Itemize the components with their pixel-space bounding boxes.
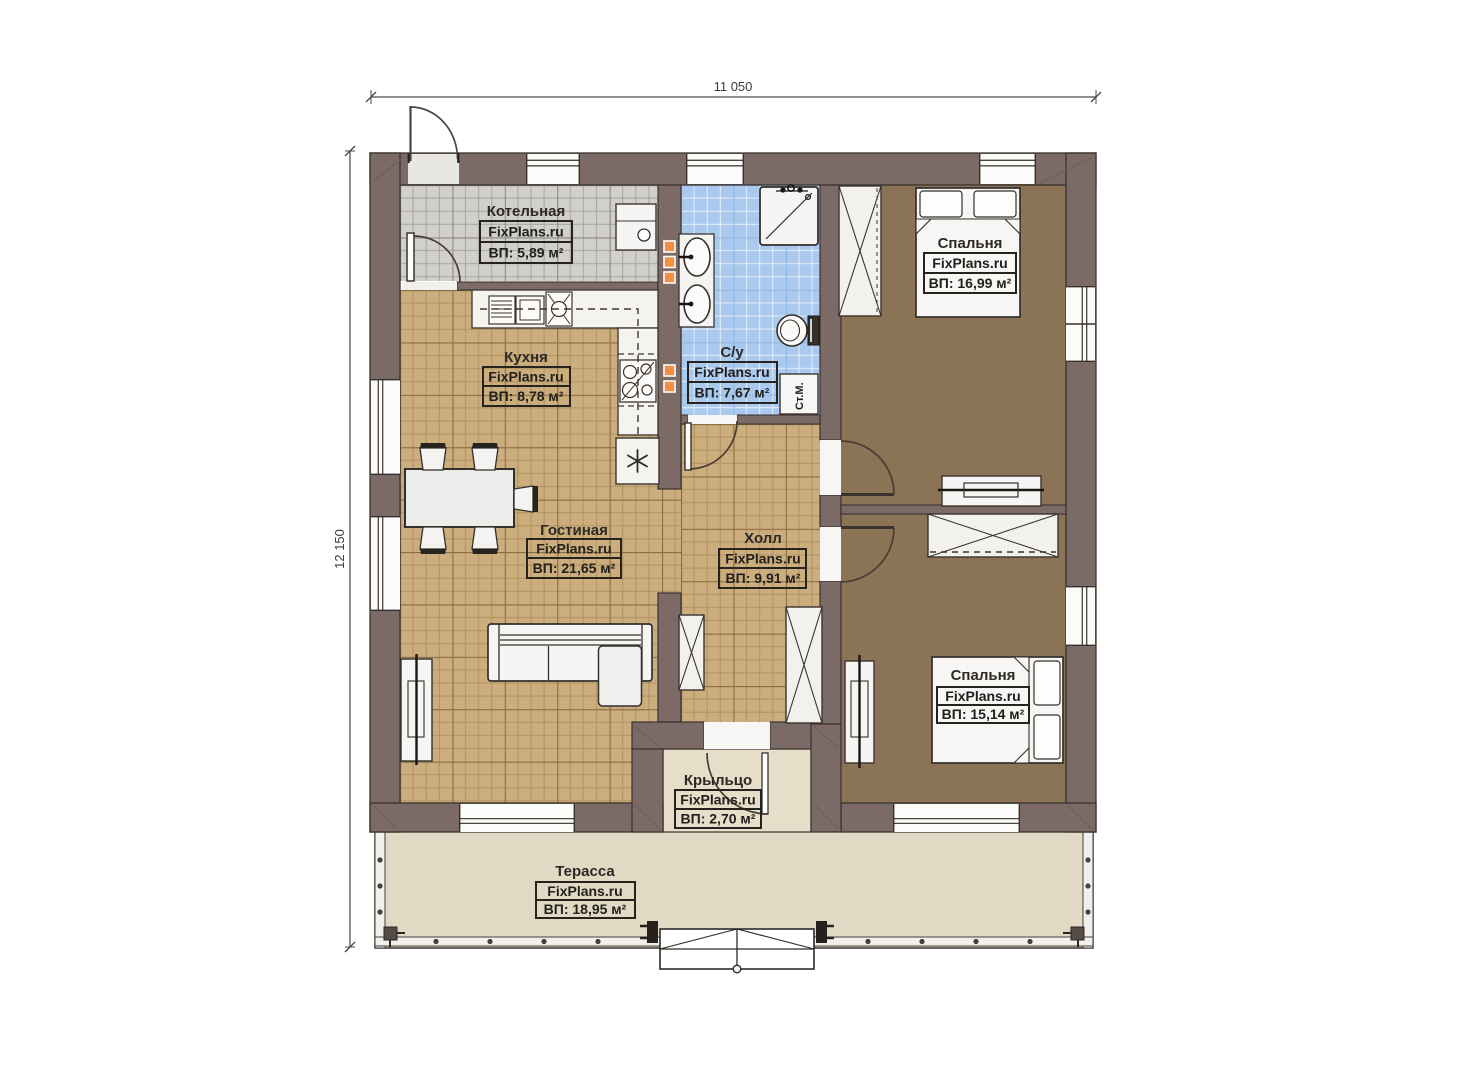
svg-text:С/у: С/у: [720, 344, 744, 361]
svg-text:ВП: 9,91 м²: ВП: 9,91 м²: [726, 570, 801, 586]
svg-text:FixPlans.ru: FixPlans.ru: [725, 550, 800, 566]
svg-text:FixPlans.ru: FixPlans.ru: [694, 364, 769, 380]
svg-text:Ст.М.: Ст.М.: [794, 382, 806, 410]
svg-text:Спальня: Спальня: [938, 235, 1003, 252]
svg-text:ВП: 18,95 м²: ВП: 18,95 м²: [544, 901, 627, 917]
svg-text:FixPlans.ru: FixPlans.ru: [488, 368, 563, 384]
svg-text:FixPlans.ru: FixPlans.ru: [945, 688, 1020, 704]
svg-text:ВП: 15,14 м²: ВП: 15,14 м²: [942, 706, 1025, 722]
svg-text:ВП: 2,70 м²: ВП: 2,70 м²: [681, 810, 756, 826]
svg-text:11 050: 11 050: [714, 79, 753, 94]
svg-text:ВП: 21,65 м²: ВП: 21,65 м²: [533, 560, 616, 576]
svg-text:Терасса: Терасса: [555, 863, 615, 880]
svg-text:FixPlans.ru: FixPlans.ru: [547, 883, 622, 899]
svg-text:Кухня: Кухня: [504, 349, 548, 366]
svg-text:Крыльцо: Крыльцо: [684, 772, 752, 789]
svg-text:FixPlans.ru: FixPlans.ru: [680, 791, 755, 807]
svg-text:Холл: Холл: [744, 530, 782, 547]
svg-text:Котельная: Котельная: [487, 203, 566, 220]
svg-text:Гостиная: Гостиная: [540, 522, 608, 539]
svg-text:12 150: 12 150: [332, 529, 347, 569]
svg-text:ВП: 8,78 м²: ВП: 8,78 м²: [489, 388, 564, 404]
svg-text:FixPlans.ru: FixPlans.ru: [488, 223, 563, 239]
svg-text:ВП: 5,89 м²: ВП: 5,89 м²: [489, 244, 564, 260]
svg-text:ВП: 7,67 м²: ВП: 7,67 м²: [695, 384, 770, 400]
svg-text:FixPlans.ru: FixPlans.ru: [536, 540, 611, 556]
svg-text:ВП: 16,99 м²: ВП: 16,99 м²: [929, 275, 1012, 291]
svg-text:FixPlans.ru: FixPlans.ru: [932, 255, 1007, 271]
svg-text:Спальня: Спальня: [951, 667, 1016, 684]
